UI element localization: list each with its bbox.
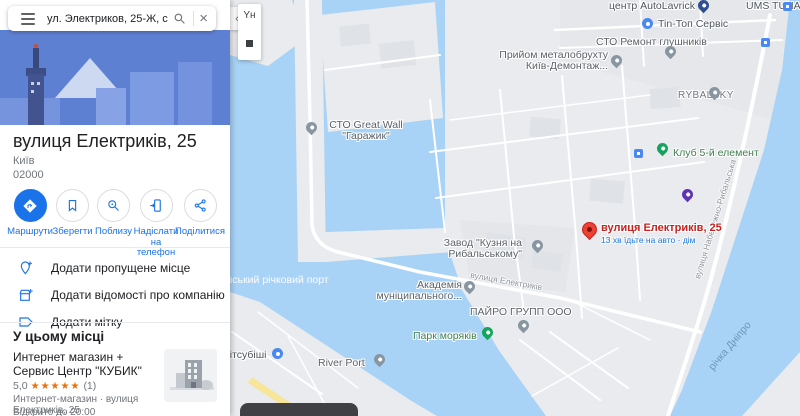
tower-window xyxy=(31,90,34,93)
poi-label-rybalsky[interactable]: RYBALSKY xyxy=(678,90,734,101)
search-icon[interactable] xyxy=(173,12,186,25)
add-business-label: Додати відомості про компанію xyxy=(51,288,225,302)
action-buttons: Маршрути Зберегти Поблизу Надіслати на т… xyxy=(0,189,230,259)
business-thumbnail[interactable] xyxy=(164,349,217,402)
share-icon xyxy=(184,189,217,222)
transit-icon[interactable] xyxy=(761,38,770,47)
poi-label-park[interactable]: Парк моряків xyxy=(413,330,477,342)
search-divider xyxy=(193,11,194,26)
poi-label-pairo[interactable]: ПАЙРО ГРУПП ООО xyxy=(470,306,572,318)
place-title: вулиця Електриків, 25 xyxy=(13,131,197,152)
nearby-icon xyxy=(97,189,130,222)
add-missing-place-item[interactable]: Додати пропущене місце xyxy=(0,254,230,281)
poi-icon-mitsubishi[interactable] xyxy=(272,348,283,359)
add-place-label: Додати пропущене місце xyxy=(51,261,190,275)
poi-icon-ums-tuna[interactable] xyxy=(783,2,792,11)
google-maps-window: × вулиця Електриків, 25 Київ 02000 xyxy=(0,0,800,416)
poi-label-club[interactable]: Клуб 5-й елемент xyxy=(673,147,759,159)
overlay-control-icon xyxy=(246,40,253,47)
place-panel: × вулиця Електриків, 25 Київ 02000 xyxy=(0,0,230,416)
section-title: У цьому місці xyxy=(13,329,104,344)
send-to-phone-button[interactable]: Надіслати на телефон xyxy=(134,189,178,259)
directions-button[interactable]: Маршрути xyxy=(8,189,52,259)
nearby-button[interactable]: Поблизу xyxy=(93,189,134,259)
share-label: Поділитися xyxy=(175,227,225,238)
water-label-river-port: Київський річковий порт xyxy=(230,274,329,286)
place-postal-code: 02000 xyxy=(13,169,44,181)
close-icon[interactable]: × xyxy=(199,11,208,26)
bottom-dark-card[interactable] xyxy=(240,403,358,416)
send-to-phone-icon xyxy=(140,189,173,222)
add-business-item[interactable]: Додати відомості про компанію xyxy=(0,281,230,308)
poi-label-sto-remont[interactable]: СТО Ремонт глушників xyxy=(596,36,707,48)
menu-icon[interactable] xyxy=(21,13,35,25)
building-shape xyxy=(130,72,174,125)
destination-marker-label[interactable]: вулиця Електриків, 25 xyxy=(601,222,722,234)
building-shape xyxy=(96,88,126,125)
directions-label: Маршрути xyxy=(7,227,53,238)
tower-window xyxy=(31,82,34,85)
divider xyxy=(0,247,230,248)
add-place-pin-icon xyxy=(17,259,35,277)
poi-label-tin-top[interactable]: Tin-Топ Сервіс xyxy=(658,18,728,30)
nearby-label: Поблизу xyxy=(95,227,132,238)
place-cover-illustration xyxy=(0,30,230,125)
poi-label-metal[interactable]: Прийом металобрухтуКиїв-Демонтаж... xyxy=(499,50,608,72)
search-box[interactable]: × xyxy=(8,6,216,31)
place-city: Київ xyxy=(13,155,34,167)
poi-label-akademia[interactable]: Академіямуніципального... xyxy=(376,280,462,302)
poi-label-autolavrick[interactable]: центр AutoLavrick xyxy=(609,0,695,12)
review-count: (1) xyxy=(83,380,96,392)
share-button[interactable]: Поділитися xyxy=(178,189,222,259)
poi-label-river-port[interactable]: River Port xyxy=(318,357,365,369)
building-shape xyxy=(178,62,212,125)
rating-value: 5,0 xyxy=(13,380,28,392)
map-overlay-control[interactable]: Yн xyxy=(238,4,261,60)
tower-window xyxy=(37,82,40,85)
business-hours: Відкрито до 20:00 xyxy=(13,407,95,416)
divider xyxy=(0,322,230,323)
star-icons: ★★★★★ xyxy=(31,381,81,392)
bookmark-icon xyxy=(56,189,89,222)
poi-label-zavod[interactable]: Завод "Кузня наРибальському" xyxy=(444,238,522,260)
tower-tip xyxy=(34,44,38,48)
save-button[interactable]: Зберегти xyxy=(52,189,93,259)
add-business-icon xyxy=(17,286,35,304)
save-label: Зберегти xyxy=(52,227,92,238)
destination-eta-label: 13 хв їдьте на авто · дім xyxy=(601,235,696,245)
overlay-control-label: Yн xyxy=(238,10,261,21)
business-name[interactable]: Интернет магазин + Сервис Центр "КУБИК" xyxy=(13,350,158,378)
poi-label-mitsubishi[interactable]: Мітсубіші xyxy=(230,349,267,361)
map-canvas[interactable]: ‹ Yн вулиця Електриків, 25 13 хв їдьте н… xyxy=(230,0,800,416)
business-rating-row: 5,0 ★★★★★ (1) xyxy=(13,380,96,392)
search-input[interactable] xyxy=(45,12,171,26)
poi-label-greatwall[interactable]: СТО Great Wall"Гаражик" xyxy=(320,120,412,142)
poi-icon-tin-top[interactable] xyxy=(642,18,653,29)
directions-icon xyxy=(14,189,47,222)
transit-icon[interactable] xyxy=(634,149,643,158)
